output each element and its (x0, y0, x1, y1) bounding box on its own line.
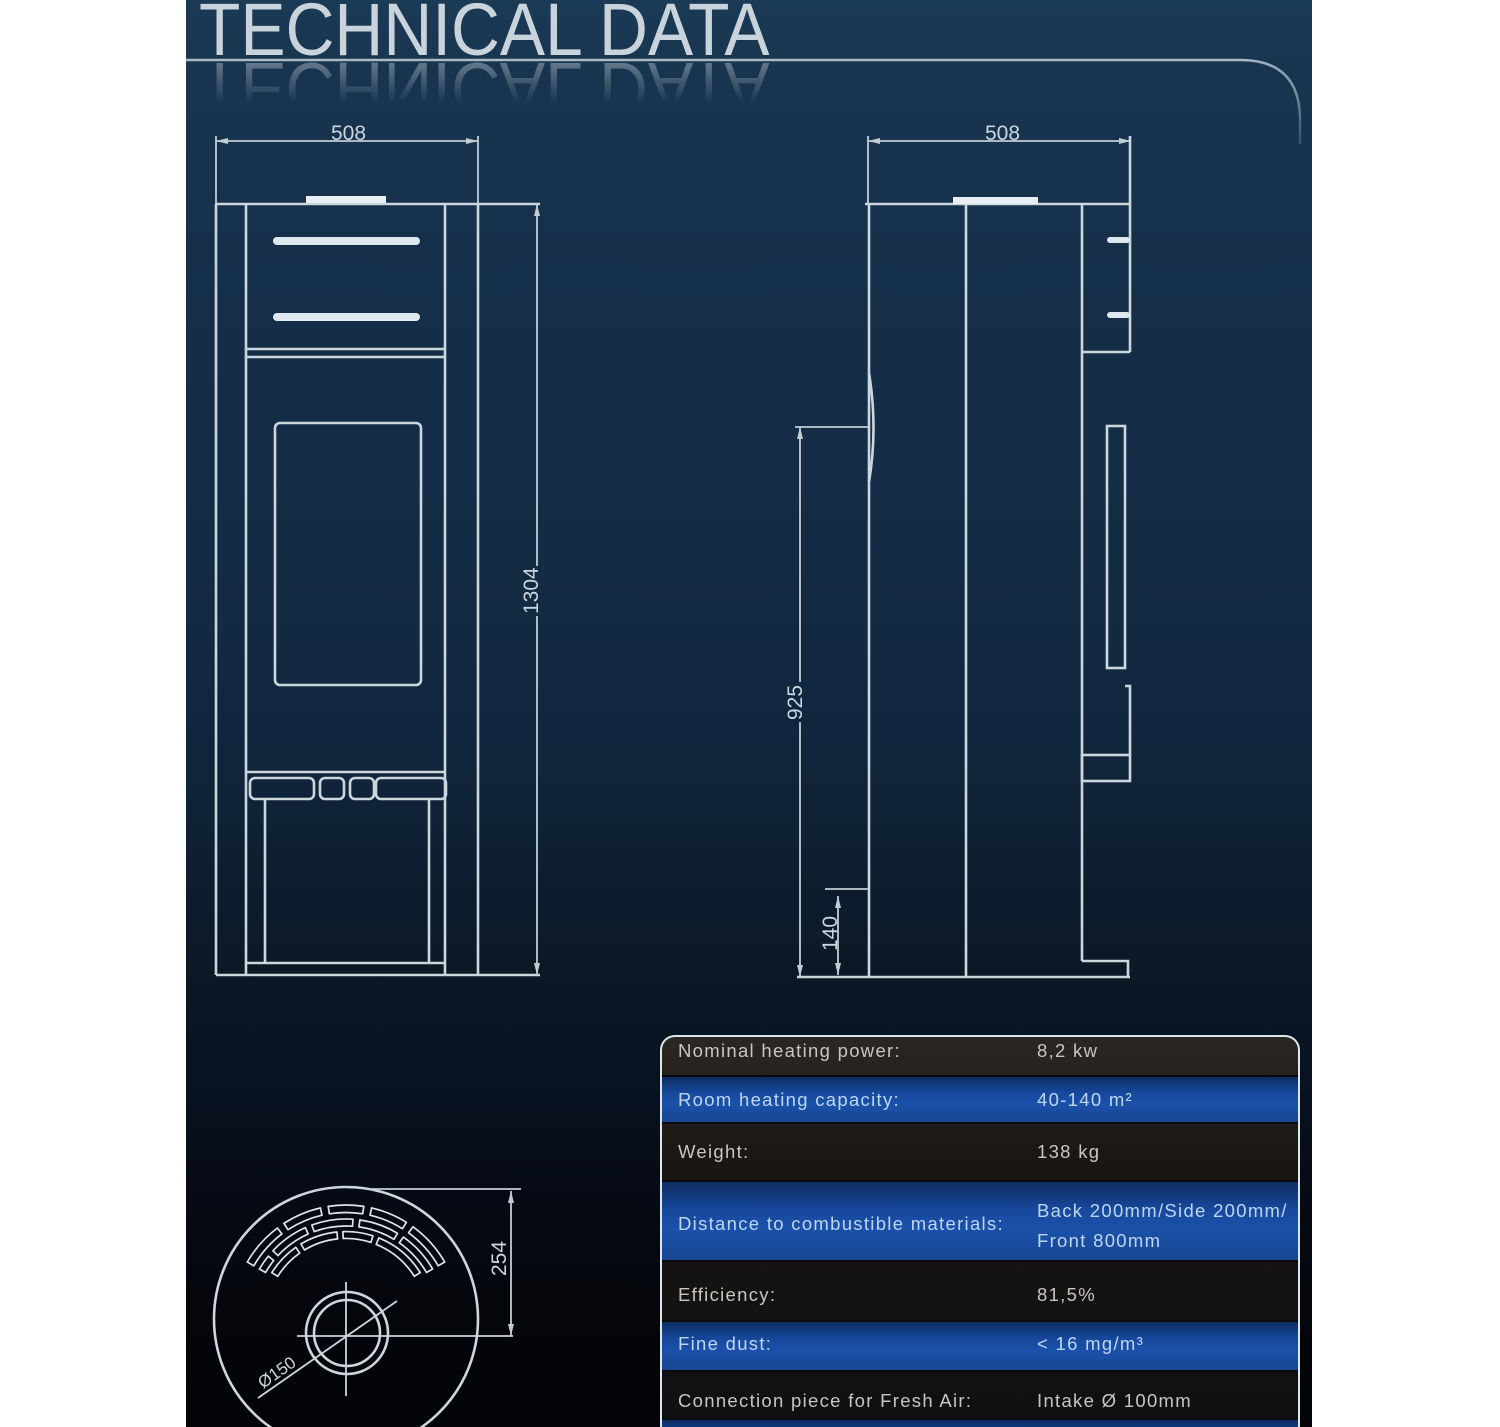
svg-text:Ø150: Ø150 (254, 1353, 299, 1392)
svg-text:925: 925 (784, 685, 807, 720)
svg-text:508: 508 (331, 122, 366, 145)
svg-text:508: 508 (985, 122, 1020, 145)
svg-text:140: 140 (819, 916, 842, 951)
svg-text:1304: 1304 (520, 567, 543, 614)
svg-text:254: 254 (488, 1241, 511, 1276)
